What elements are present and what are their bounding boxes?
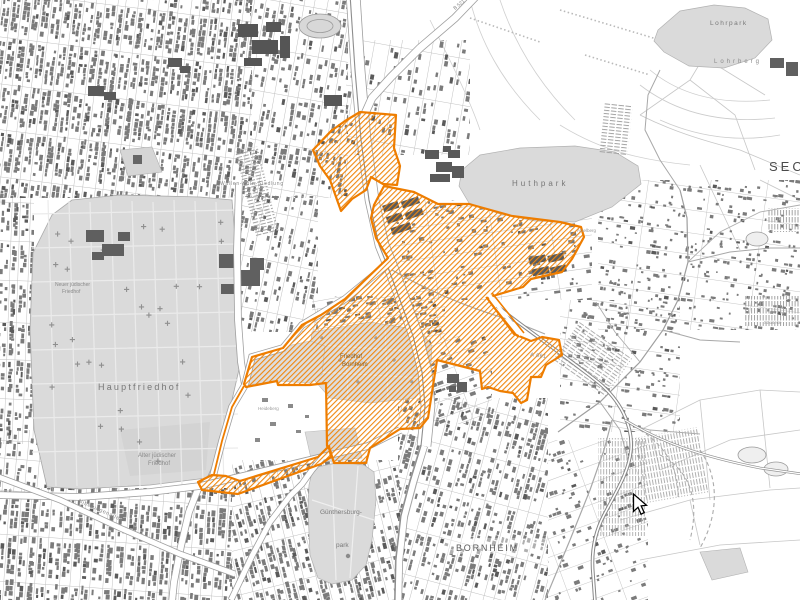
svg-text:Wallen-Köln-Siedlung: Wallen-Köln-Siedlung	[220, 181, 284, 187]
svg-text:Günthersburg-: Günthersburg-	[320, 509, 362, 516]
svg-text:Neuer jüdischer: Neuer jüdischer	[55, 282, 90, 288]
svg-text:Säuseke: Säuseke	[764, 320, 782, 325]
svg-text:Bornheim: Bornheim	[342, 362, 368, 368]
svg-text:Friedhof: Friedhof	[340, 354, 362, 360]
svg-text:Lohrberg: Lohrberg	[714, 59, 762, 65]
svg-text:BORNHEIM: BORNHEIM	[456, 543, 519, 553]
svg-text:Huthpark: Huthpark	[512, 179, 568, 188]
svg-text:Alter jüdischer: Alter jüdischer	[138, 453, 176, 459]
svg-text:Hauptfriedhof: Hauptfriedhof	[98, 382, 181, 392]
svg-text:Atzelberg: Atzelberg	[577, 228, 597, 233]
svg-text:Heideberg: Heideberg	[258, 406, 279, 411]
svg-text:Lohrpark: Lohrpark	[710, 20, 748, 27]
svg-text:Friedhof: Friedhof	[148, 461, 170, 467]
svg-text:Friedhof: Friedhof	[62, 289, 81, 295]
svg-text:SEC: SEC	[769, 159, 800, 174]
svg-text:park: park	[336, 542, 349, 549]
